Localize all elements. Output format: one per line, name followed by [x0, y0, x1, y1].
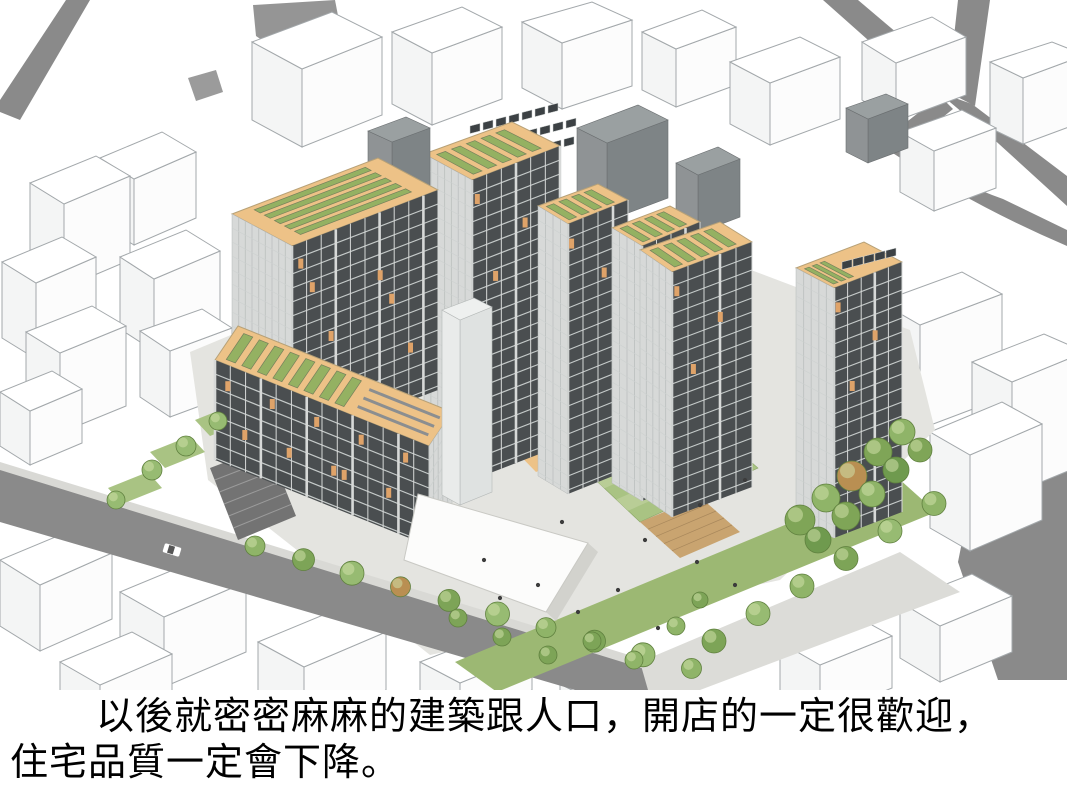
caption-line-1: 以後就密密麻麻的建築跟人口，開店的一定很歡迎， — [10, 694, 1057, 740]
tower-6 — [796, 242, 902, 538]
caption-text: 以後就密密麻麻的建築跟人口，開店的一定很歡迎， 住宅品質一定會下降。 — [0, 690, 1067, 786]
aerial-architectural-rendering — [0, 0, 1067, 690]
elevator-core — [442, 298, 492, 505]
presentation-slide: 以後就密密麻麻的建築跟人口，開店的一定很歡迎， 住宅品質一定會下降。 — [0, 0, 1067, 800]
caption-line-2: 住宅品質一定會下降。 — [10, 740, 1057, 786]
tower-5 — [640, 222, 752, 517]
